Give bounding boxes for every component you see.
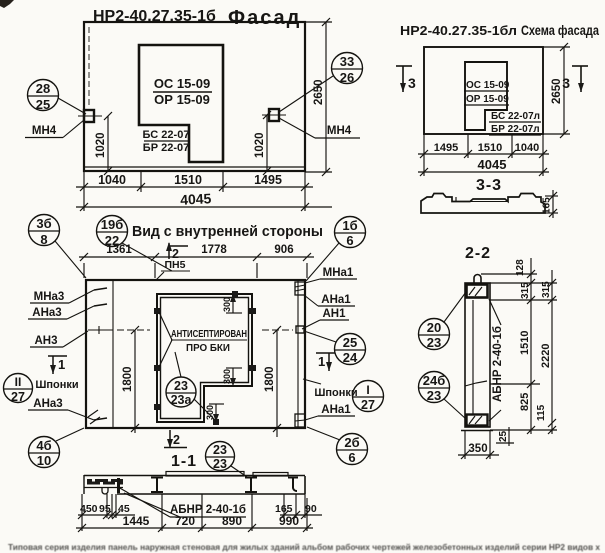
svg-text:720: 720 bbox=[175, 514, 195, 528]
svg-text:25: 25 bbox=[343, 335, 357, 350]
svg-text:1495: 1495 bbox=[434, 142, 458, 154]
svg-text:Шпонки: Шпонки bbox=[35, 379, 78, 391]
svg-text:115: 115 bbox=[536, 404, 547, 421]
svg-text:ОР 15-09: ОР 15-09 bbox=[466, 94, 509, 105]
svg-text:Схема фасада: Схема фасада bbox=[521, 23, 599, 38]
svg-text:1020: 1020 bbox=[254, 132, 266, 158]
svg-text:ОС 15-09: ОС 15-09 bbox=[466, 80, 510, 91]
svg-text:АНа3: АНа3 bbox=[32, 307, 61, 319]
svg-text:2: 2 bbox=[173, 433, 180, 447]
svg-text:26: 26 bbox=[340, 70, 354, 85]
svg-text:1510: 1510 bbox=[519, 331, 531, 355]
svg-text:25: 25 bbox=[498, 430, 509, 442]
svg-text:23: 23 bbox=[427, 335, 441, 350]
svg-text:АБНР 2-40-1б: АБНР 2-40-1б bbox=[492, 326, 504, 402]
svg-text:19б: 19б bbox=[101, 217, 124, 232]
svg-text:1040: 1040 bbox=[98, 173, 126, 187]
svg-text:ОР 15-09: ОР 15-09 bbox=[154, 92, 210, 107]
svg-text:Вид с внутренней стороны: Вид с внутренней стороны bbox=[132, 223, 323, 240]
svg-text:БС 22-07: БС 22-07 bbox=[143, 129, 190, 141]
svg-text:БР 22-07: БР 22-07 bbox=[143, 142, 189, 154]
svg-text:Фасад: Фасад bbox=[228, 7, 301, 29]
svg-text:28: 28 bbox=[36, 81, 50, 96]
svg-text:АН3: АН3 bbox=[34, 335, 57, 347]
svg-text:АН1: АН1 bbox=[322, 308, 346, 320]
svg-text:23: 23 bbox=[174, 379, 188, 393]
svg-text:4045: 4045 bbox=[180, 190, 212, 208]
svg-text:27: 27 bbox=[11, 390, 25, 404]
svg-text:1040: 1040 bbox=[515, 142, 539, 154]
svg-text:3: 3 bbox=[562, 75, 570, 91]
svg-text:27: 27 bbox=[361, 398, 375, 412]
svg-text:3-3: 3-3 bbox=[476, 177, 502, 194]
svg-text:2650: 2650 bbox=[551, 78, 563, 104]
svg-text:АНа1: АНа1 bbox=[321, 294, 351, 306]
svg-text:4б: 4б bbox=[36, 438, 51, 453]
svg-text:1: 1 bbox=[58, 357, 65, 372]
svg-text:23: 23 bbox=[213, 443, 227, 457]
svg-text:1б: 1б bbox=[342, 218, 357, 233]
svg-text:2-2: 2-2 bbox=[465, 245, 491, 262]
svg-text:МНа3: МНа3 bbox=[34, 291, 65, 303]
svg-text:24: 24 bbox=[343, 350, 358, 365]
svg-text:АНа3: АНа3 bbox=[33, 398, 62, 410]
svg-text:990: 990 bbox=[279, 514, 299, 528]
svg-text:33: 33 bbox=[340, 54, 354, 69]
svg-text:10: 10 bbox=[37, 453, 51, 468]
svg-text:23: 23 bbox=[427, 388, 441, 403]
svg-text:1800: 1800 bbox=[264, 366, 276, 392]
svg-text:906: 906 bbox=[274, 244, 293, 256]
svg-text:350: 350 bbox=[468, 443, 487, 455]
svg-text:1020: 1020 bbox=[95, 132, 107, 158]
svg-text:1510: 1510 bbox=[174, 173, 202, 187]
svg-text:Типовая серия изделия панель н: Типовая серия изделия панель наружная ст… bbox=[8, 543, 601, 552]
svg-text:4045: 4045 bbox=[478, 157, 507, 172]
svg-text:МНа1: МНа1 bbox=[323, 267, 354, 279]
svg-text:3: 3 bbox=[408, 75, 416, 91]
svg-text:315: 315 bbox=[520, 282, 531, 299]
svg-text:1361: 1361 bbox=[106, 244, 132, 256]
svg-text:165: 165 bbox=[542, 197, 553, 214]
svg-text:1445: 1445 bbox=[123, 514, 150, 528]
svg-text:2б: 2б bbox=[344, 435, 359, 450]
svg-text:1800: 1800 bbox=[122, 366, 134, 392]
svg-text:ПРО БКИ: ПРО БКИ bbox=[186, 343, 230, 354]
svg-text:890: 890 bbox=[222, 514, 242, 528]
svg-text:МН4: МН4 bbox=[32, 125, 57, 137]
svg-text:23а: 23а bbox=[171, 393, 193, 407]
svg-text:300: 300 bbox=[222, 369, 232, 384]
svg-text:6: 6 bbox=[348, 450, 355, 465]
svg-text:1778: 1778 bbox=[201, 244, 227, 256]
svg-text:6: 6 bbox=[346, 233, 353, 248]
svg-text:1-1: 1-1 bbox=[171, 453, 197, 470]
svg-text:МН4: МН4 bbox=[327, 125, 352, 137]
svg-text:315: 315 bbox=[541, 281, 552, 298]
svg-text:20: 20 bbox=[427, 320, 441, 335]
svg-text:АНТИСЕПТИРОВАН: АНТИСЕПТИРОВАН bbox=[171, 329, 247, 340]
svg-text:825: 825 bbox=[519, 393, 531, 411]
svg-text:ПН5: ПН5 bbox=[165, 259, 186, 271]
svg-text:128: 128 bbox=[515, 259, 526, 276]
svg-text:24б: 24б bbox=[423, 373, 446, 388]
svg-text:Шпонки: Шпонки bbox=[314, 387, 357, 399]
svg-text:БР 22-07л: БР 22-07л bbox=[491, 124, 540, 135]
svg-text:3б: 3б bbox=[36, 216, 51, 231]
svg-text:23: 23 bbox=[213, 457, 227, 471]
svg-text:95: 95 bbox=[99, 503, 111, 515]
svg-text:2650: 2650 bbox=[313, 79, 325, 105]
svg-text:1495: 1495 bbox=[254, 173, 282, 187]
svg-text:450: 450 bbox=[80, 503, 98, 515]
svg-text:2220: 2220 bbox=[540, 344, 552, 368]
svg-text:I: I bbox=[366, 383, 369, 397]
svg-text:ОС 15-09: ОС 15-09 bbox=[154, 76, 210, 91]
svg-text:НР2-40.27.35-1бл: НР2-40.27.35-1бл bbox=[400, 23, 517, 38]
svg-text:25: 25 bbox=[36, 97, 50, 112]
svg-text:1510: 1510 bbox=[478, 142, 502, 154]
svg-text:8: 8 bbox=[40, 232, 47, 247]
svg-text:БС 22-07л: БС 22-07л bbox=[491, 111, 540, 122]
svg-text:II: II bbox=[15, 375, 22, 389]
svg-text:300: 300 bbox=[222, 297, 232, 312]
svg-text:АНа1: АНа1 bbox=[321, 404, 351, 416]
svg-text:1: 1 bbox=[318, 354, 325, 369]
